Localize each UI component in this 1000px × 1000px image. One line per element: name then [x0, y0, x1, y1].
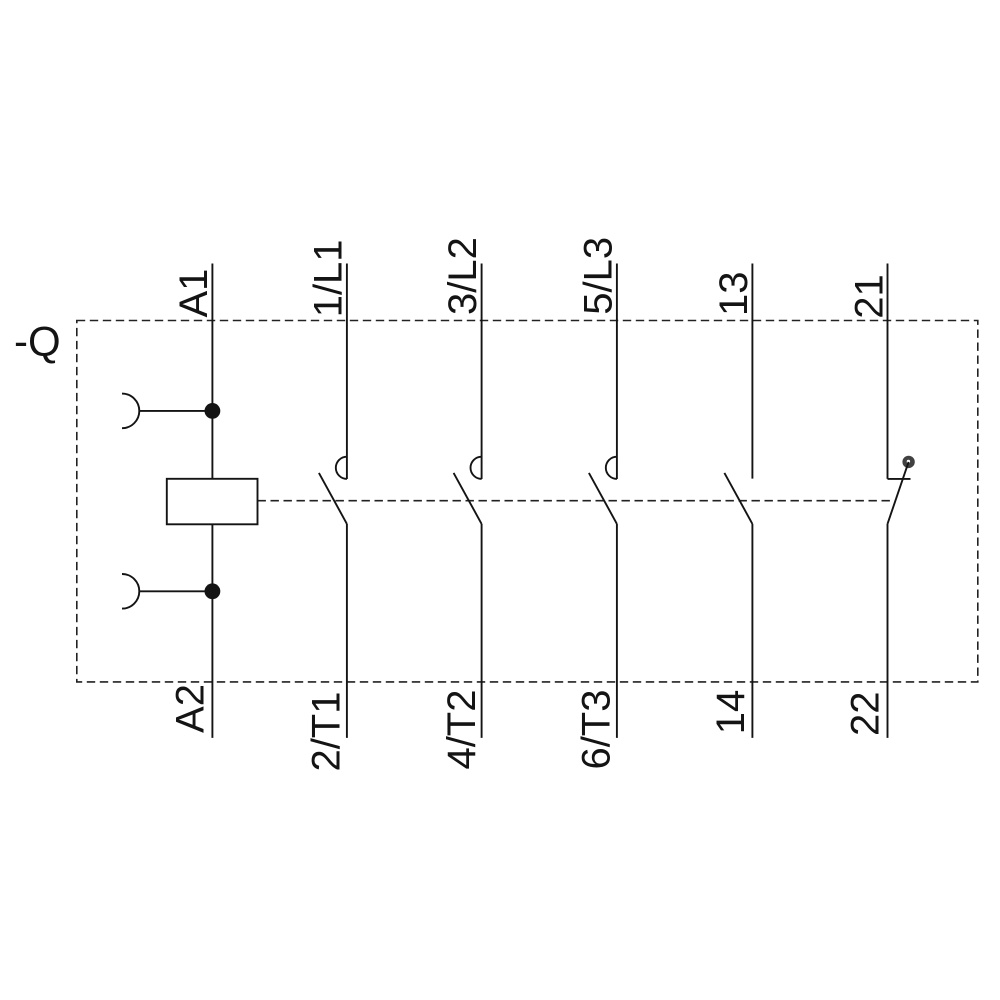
svg-text:4/T2: 4/T2	[440, 690, 484, 770]
svg-text:13: 13	[712, 272, 756, 317]
svg-text:-Q: -Q	[14, 318, 61, 365]
svg-text:3/L2: 3/L2	[441, 237, 485, 315]
svg-text:1/L1: 1/L1	[307, 239, 351, 317]
svg-text:5/L3: 5/L3	[577, 237, 621, 315]
svg-text:A2: A2	[169, 684, 213, 733]
svg-text:21: 21	[848, 274, 892, 319]
svg-text:22: 22	[844, 692, 888, 737]
svg-text:6/T3: 6/T3	[575, 690, 619, 770]
svg-text:A1: A1	[172, 269, 216, 318]
svg-text:2/T1: 2/T1	[305, 692, 349, 772]
svg-text:14: 14	[709, 690, 753, 735]
